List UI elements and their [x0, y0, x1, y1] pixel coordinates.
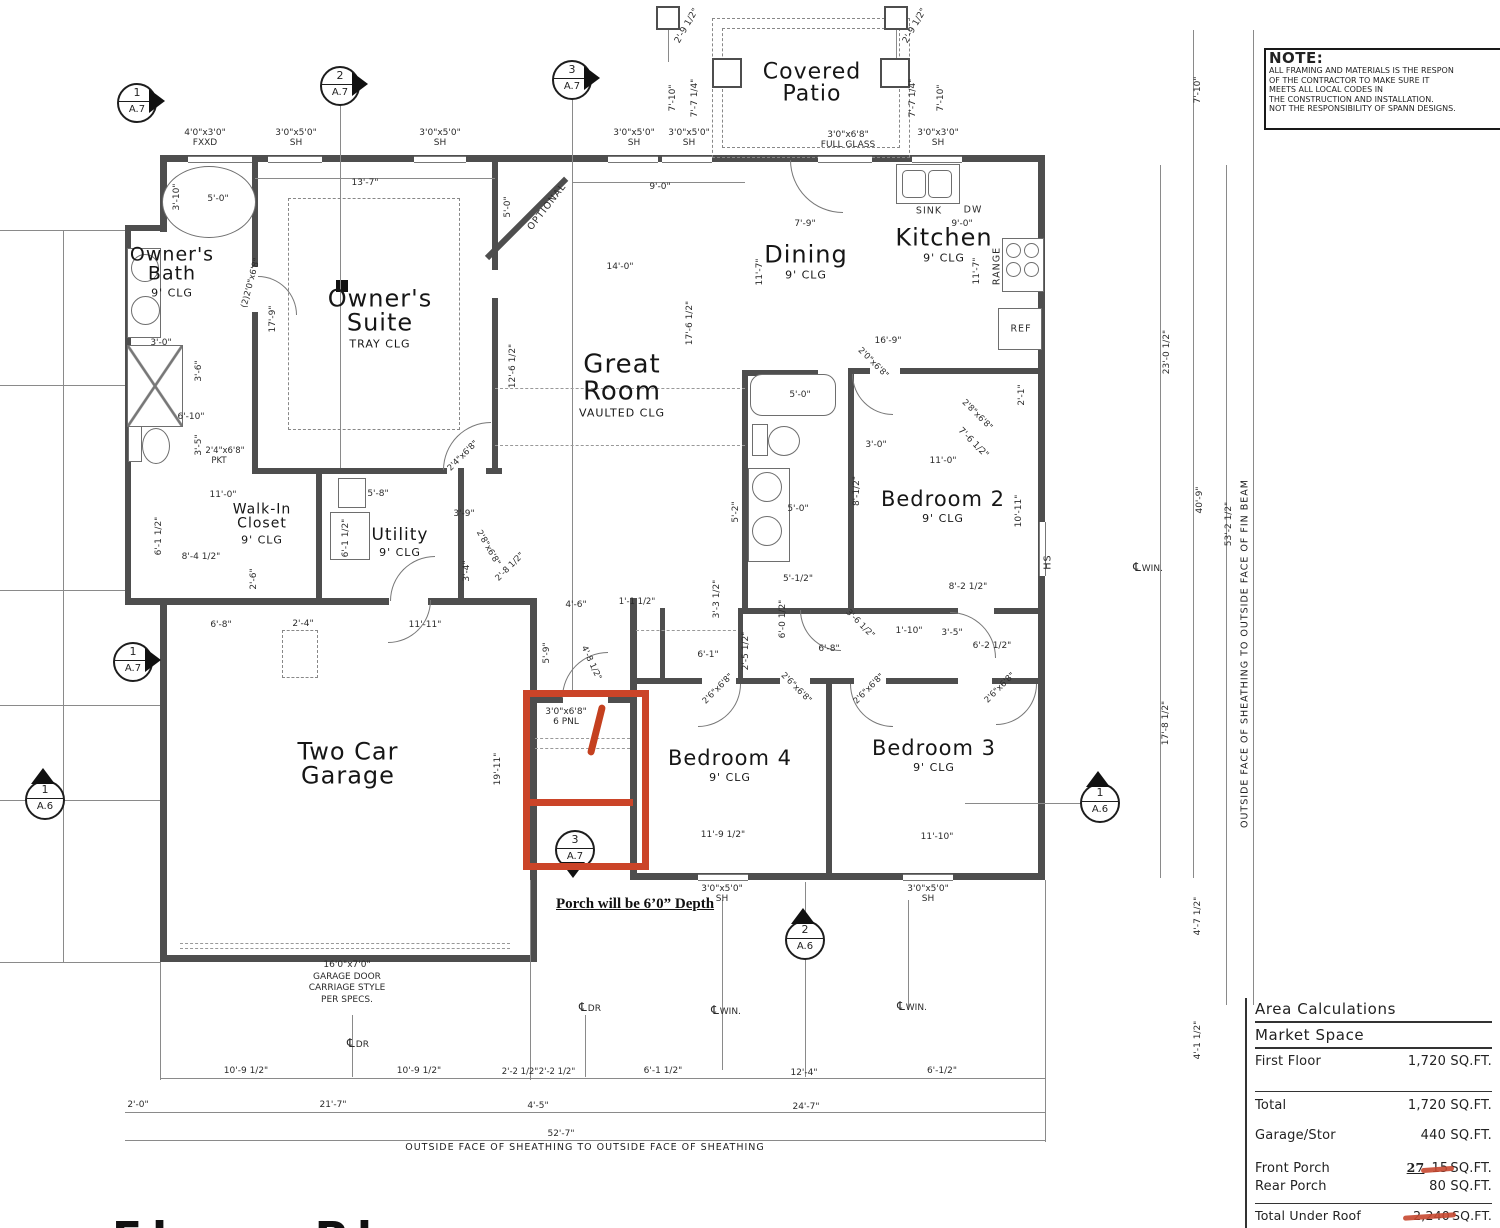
room-name: Dining [764, 243, 847, 267]
dimension-label: 52'-7" [547, 1129, 574, 1139]
table-row-front-porch: Front Porch 27 15 SQ.FT. [1255, 1160, 1492, 1176]
window-label: 3'0"x5'0" SH [275, 129, 316, 149]
row-label: Garage/Stor [1255, 1128, 1336, 1143]
dimension-label: 5'-1/2" [783, 574, 813, 584]
dimension-label: 2'4"x6'8" [205, 446, 244, 456]
extension-line [530, 880, 531, 1080]
struck-value: 15 [1429, 1161, 1450, 1176]
dimension-label: 5'-0" [207, 194, 228, 204]
fixture-label: RANGE [992, 247, 1003, 285]
row-label: Total Under Roof [1255, 1208, 1361, 1223]
extension-line [160, 1078, 1045, 1079]
window-opening [903, 874, 953, 881]
wall-segment [428, 598, 537, 605]
centerline-label: ℄WIN. [711, 1003, 741, 1017]
marker-number: 2 [787, 922, 823, 939]
row-label: Front Porch [1255, 1161, 1330, 1176]
garage-door-label-line: PER SPECS. [280, 995, 414, 1007]
dimension-label: 40'-9" [1195, 486, 1205, 513]
room-label: Dining9' CLG [764, 243, 847, 282]
row-value: 1,720 SQ.FT. [1408, 1054, 1492, 1069]
room-name: Owner's Bath [130, 246, 214, 285]
extension-line [722, 900, 723, 1070]
marker-pointer-icon [791, 908, 815, 924]
note-line: OF THE CONTRACTOR TO MAKE SURE IT [1269, 76, 1500, 86]
ceiling-note: 9' CLG [233, 534, 292, 545]
room-label: Bedroom 39' CLG [872, 738, 996, 774]
dimension-label: 3'-5" [194, 434, 204, 455]
dimension-label: 21'-7" [319, 1100, 346, 1110]
wall-segment [316, 468, 322, 600]
dimension-label: 1'-10" [895, 626, 922, 636]
window-opening [608, 156, 658, 163]
note-line: NOT THE RESPONSIBILITY OF SPANN DESIGNS. [1269, 104, 1500, 114]
sheet-title-partial: Floor Plan [112, 1213, 672, 1228]
garage-door-label-line: GARAGE DOOR [280, 972, 414, 984]
dimension-label: 7'-7 1/4" [690, 79, 700, 118]
dimension-label: 19'-11" [493, 753, 503, 786]
marker-sheet: A.6 [27, 799, 63, 814]
centerline-label: ℄DR [579, 1000, 601, 1014]
row-value: 1,720 SQ.FT. [1408, 1098, 1492, 1113]
marker-number: 1 [27, 782, 63, 799]
shower-stall [127, 345, 183, 427]
extension-line [160, 962, 161, 1080]
patio-footing [884, 6, 908, 30]
centerline-label: ℄WIN. [897, 999, 927, 1013]
row-value: 440 SQ.FT. [1421, 1128, 1492, 1143]
wall-segment [125, 225, 167, 231]
vanity-sink [752, 516, 782, 546]
centerline-icon: ℄ [347, 1036, 355, 1050]
window-label: 3'0"x5'0" SH [419, 129, 460, 149]
room-label: Covered Patio [763, 62, 861, 107]
marker-pointer-icon [145, 648, 161, 672]
kitchen-sink-bowl [902, 170, 926, 198]
note-box: NOTE: ALL FRAMING AND MATERIALS IS THE R… [1264, 48, 1500, 130]
range-burner [1024, 243, 1039, 258]
section-marker: 1A.6 [25, 780, 65, 820]
dashed-line [636, 630, 736, 632]
wall-segment [530, 873, 537, 962]
porch-markup-box [523, 690, 649, 870]
dimension-label: 11'-11" [409, 620, 442, 630]
note-line: ALL FRAMING AND MATERIALS IS THE RESPON [1269, 66, 1500, 76]
struck-value: 2,240 [1411, 1208, 1452, 1223]
dimension-label: 3'-10" [172, 183, 182, 210]
section-marker: 2A.6 [785, 920, 825, 960]
ceiling-note: 9' CLG [881, 514, 1005, 525]
fixture-label: HS [1043, 554, 1054, 569]
fixture-label: DW [964, 205, 983, 216]
extension-line [908, 900, 909, 1010]
room-name: Utility [371, 527, 428, 544]
dimension-label: 2'-6" [249, 568, 259, 589]
section-marker: 3A.7 [552, 60, 592, 100]
room-name: Owner's Suite [328, 286, 432, 335]
area-table-title: Area Calculations [1255, 998, 1492, 1023]
dimension-label: 3'-5" [941, 628, 962, 638]
table-row: Total 1,720 SQ.FT. [1255, 1091, 1492, 1113]
dimension-label: 6'-1 1/2" [341, 519, 351, 558]
dimension-label: 6'-10" [177, 412, 204, 422]
extension-line [668, 26, 669, 62]
dimension-label: 6'-1" [697, 650, 718, 660]
window-opening [662, 156, 712, 163]
dimension-label: 12'-4" [790, 1068, 817, 1078]
door-swing-arc [852, 374, 893, 415]
ceiling-note: 9' CLG [872, 763, 996, 774]
marker-sheet: A.6 [1082, 802, 1118, 817]
wall-segment [886, 678, 958, 684]
dimension-label: 2'8"x6'8" [474, 529, 502, 568]
dimension-label: 9'-0" [649, 182, 670, 192]
outside-sheathing-caption-bottom: OUTSIDE FACE OF SHEATHING TO OUTSIDE FAC… [330, 1142, 840, 1153]
note-title: NOTE: [1269, 51, 1500, 66]
door-swing-arc [790, 160, 843, 213]
extension-line [805, 952, 806, 1077]
dimension-label: 7'-7 1/4" [908, 79, 918, 118]
dimension-label: 12'-6 1/2" [508, 344, 518, 388]
room-name: Covered Patio [763, 62, 861, 107]
dimension-label: 2'-5 1/2" [741, 632, 751, 671]
extension-line [125, 1140, 1045, 1141]
toilet-bowl [768, 426, 800, 456]
dimension-label: 5'-0" [787, 504, 808, 514]
extension-line [1193, 30, 1194, 878]
range-burner [1006, 243, 1021, 258]
marker-pointer-icon [1086, 771, 1110, 787]
extension-line [0, 705, 160, 706]
dashed-line [495, 445, 745, 447]
dimension-label: 10'-9 1/2" [397, 1066, 441, 1076]
porch-markup-line [525, 799, 633, 806]
wall-segment [252, 312, 258, 474]
dimension-label: 3'-0" [150, 338, 171, 348]
dimension-label: 2'-2 1/2" [502, 1067, 539, 1077]
dimension-label: 11'-9 1/2" [701, 830, 745, 840]
dimension-label: 9'-0" [951, 219, 972, 229]
extension-line [1226, 165, 1227, 1005]
range-burner [1024, 262, 1039, 277]
vanity-sink [752, 472, 782, 502]
dimension-label: 53'-2 1/2" [1224, 502, 1234, 546]
dimension-label: 3'-4" [462, 560, 472, 581]
room-name: Bedroom 3 [872, 738, 996, 759]
ceiling-note: 9' CLG [668, 773, 792, 784]
wall-segment [630, 873, 1045, 880]
dimension-label: 11'-7" [755, 258, 765, 285]
dimension-label: 17'-8 1/2" [1161, 701, 1171, 745]
dimension-label: 23'-0 1/2" [1162, 330, 1172, 374]
room-label: Owner's Bath9' CLG [130, 246, 214, 299]
dimension-label: 17'-6 1/2" [685, 301, 695, 345]
row-unit: SQ.FT. [1452, 1208, 1492, 1223]
window-opening [912, 156, 962, 163]
marker-pointer-icon [31, 768, 55, 784]
room-label: Bedroom 49' CLG [668, 748, 792, 784]
ceiling-note: TRAY CLG [328, 338, 432, 349]
window-opening [268, 156, 322, 163]
room-name: Kitchen [895, 226, 992, 250]
dimension-label: 5'-8" [367, 489, 388, 499]
wall-segment [810, 678, 854, 684]
dimension-label: 8'-4 1/2" [182, 552, 221, 562]
dimension-label: 17'-9" [268, 305, 278, 332]
dashed-line [180, 943, 510, 945]
dimension-label: 6'-1 1/2" [644, 1066, 683, 1076]
row-value: 80 SQ.FT. [1429, 1179, 1492, 1194]
dimension-label: 7'-10" [1193, 76, 1203, 103]
patio-post [880, 58, 910, 88]
marker-pointer-icon [584, 66, 600, 90]
dimension-label: 4'-5" [527, 1101, 548, 1111]
dimension-label: 7'-10" [668, 84, 678, 111]
room-name: Walk-In Closet [233, 503, 292, 532]
table-row: First Floor 1,720 SQ.FT. [1255, 1054, 1492, 1069]
dimension-label: 14'-0" [606, 262, 633, 272]
dimension-label: 6'-1 1/2" [154, 517, 164, 556]
ceiling-note: VAULTED CLG [579, 407, 665, 418]
wall-segment [125, 598, 389, 605]
marker-pointer-icon [149, 89, 165, 113]
garage-door-label-line: CARRIAGE STYLE [280, 983, 414, 995]
toilet-bowl [142, 428, 170, 464]
garage-door-label: 16'0"x7'0"GARAGE DOORCARRIAGE STYLEPER S… [280, 960, 414, 1006]
dimension-label: 16'-9" [874, 336, 901, 346]
section-marker: 2A.7 [320, 66, 360, 106]
room-label: Bedroom 29' CLG [881, 489, 1005, 525]
dimension-label: 8'-2 1/2" [949, 582, 988, 592]
dimension-label: 4'-1 1/2" [1193, 1021, 1203, 1060]
room-label: Utility9' CLG [371, 527, 428, 559]
kitchen-sink-bowl [928, 170, 952, 198]
dimension-label: 3'-0" [865, 440, 886, 450]
dimension-label: 7'-10" [936, 84, 946, 111]
toilet-tank [128, 426, 142, 462]
extension-line [0, 800, 160, 801]
section-marker: 1A.6 [1080, 783, 1120, 823]
extension-line [585, 1015, 586, 1077]
extension-line [1045, 880, 1046, 1142]
wall-segment [660, 608, 665, 680]
row-label: Total [1255, 1098, 1286, 1113]
extension-line [1160, 165, 1161, 878]
sheet-title-text: Floor Plan [112, 1213, 463, 1228]
dimension-label: 24'-7" [792, 1102, 819, 1112]
note-line: THE CONSTRUCTION AND INSTALLATION. [1269, 95, 1500, 105]
ceiling-note: 9' CLG [130, 287, 214, 298]
fixture-label: REF [1010, 324, 1031, 335]
dimension-label: 5'-2" [731, 501, 741, 522]
marker-number: 1 [1082, 785, 1118, 802]
room-name: Bedroom 2 [881, 489, 1005, 510]
dimension-label: 4'-6" [565, 600, 586, 610]
garage-door-label-line: 16'0"x7'0" [280, 960, 414, 972]
centerline-icon: ℄ [711, 1003, 719, 1017]
dimension-label: 6'-8" [210, 620, 231, 630]
wall-segment [994, 608, 1045, 614]
ceiling-note: 9' CLG [371, 548, 428, 559]
dimension-label: 3'-9" [453, 509, 474, 519]
dimension-label: 2'-0" [127, 1100, 148, 1110]
dimension-label: 2'-2 1/2" [539, 1067, 576, 1077]
wall-segment [826, 678, 832, 880]
patio-post [712, 58, 742, 88]
section-marker: 1A.7 [117, 83, 157, 123]
table-row: Garage/Stor 440 SQ.FT. [1255, 1128, 1492, 1143]
dimension-label: 5'-9" [542, 642, 552, 663]
window-label: 3'0"x5'0" SH [668, 129, 709, 149]
area-table-subtitle: Market Space [1255, 1023, 1492, 1049]
vanity-sink [131, 296, 160, 325]
section-marker: 1A.7 [113, 642, 153, 682]
wall-segment [255, 468, 447, 474]
dimension-label: 11'-0" [209, 490, 236, 500]
dimension-label: 10'-11" [1014, 495, 1024, 528]
wall-segment [492, 298, 498, 474]
dimension-label: 3'-6" [194, 360, 204, 381]
window-opening [414, 156, 466, 163]
table-row: Rear Porch 80 SQ.FT. [1255, 1179, 1492, 1194]
room-label: Great RoomVAULTED CLG [579, 351, 665, 418]
row-unit: SQ.FT. [1450, 1161, 1492, 1176]
extension-line [125, 1112, 1045, 1113]
dimension-label: 6'-8" [818, 644, 839, 654]
dimension-label: 5'-0" [789, 390, 810, 400]
area-calculations-table: Area Calculations Market Space First Flo… [1245, 998, 1492, 1228]
extension-line [0, 962, 160, 963]
door-swing-arc [390, 556, 435, 601]
dimension-label: 2'-4" [292, 619, 313, 629]
wall-segment [630, 678, 702, 684]
table-row-total-under-roof: Total Under Roof 2,240 SQ.FT. [1255, 1203, 1492, 1228]
wall-segment [160, 598, 167, 962]
outside-fin-beam-caption-right: OUTSIDE FACE OF SHEATHING TO OUTSIDE FAC… [1240, 314, 1251, 994]
dimension-label: 3'-3 1/2" [712, 580, 722, 619]
window-label: 4'0"x3'0" FXXD [184, 129, 225, 149]
range-burner [1006, 262, 1021, 277]
row-label: First Floor [1255, 1054, 1321, 1069]
dimension-label: 11'-0" [929, 456, 956, 466]
room-label: Two Car Garage [298, 740, 399, 789]
dimension-label: 11'-7" [972, 257, 982, 284]
window-opening [698, 874, 748, 881]
room-label: Owner's SuiteTRAY CLG [328, 286, 432, 349]
wall-segment [900, 368, 1045, 374]
dimension-label: 13'-7" [351, 178, 378, 188]
marker-sheet: A.6 [787, 939, 823, 954]
dimension-label: 7'-9" [794, 219, 815, 229]
row-label: Rear Porch [1255, 1179, 1327, 1194]
centerline-label: ℄DR [347, 1036, 369, 1050]
dimension-label: 6'-0 1/2" [778, 600, 788, 639]
dimension-label: 1'-1 1/2" [619, 597, 656, 607]
room-name: Two Car Garage [298, 740, 399, 789]
note-line: MEETS ALL LOCAL CODES IN [1269, 85, 1500, 95]
centerline-icon: ℄ [579, 1000, 587, 1014]
extension-line [63, 230, 64, 962]
dimension-label: 2'6"x6'8" [779, 671, 814, 706]
window-label: 3'0"x5'0" SH [907, 885, 948, 905]
porch-depth-note: Porch will be 6’0” Depth [556, 896, 714, 913]
dimension-label: 10'-9 1/2" [224, 1066, 268, 1076]
dimension-label: 2'-1" [1017, 384, 1027, 405]
dimension-label: 4'-7 1/2" [1193, 897, 1203, 936]
utility-appliance [338, 478, 366, 508]
centerline-icon: ℄ [1133, 560, 1141, 574]
extension-line [1253, 30, 1254, 1005]
window-label: 3'0"x5'0" SH [613, 129, 654, 149]
room-label: Walk-In Closet9' CLG [233, 503, 292, 546]
centerline-icon: ℄ [897, 999, 905, 1013]
dimension-label: 6'-2 1/2" [973, 641, 1012, 651]
floor-plan-sheet: Owner's Bath9' CLGOwner's SuiteTRAY CLGG… [0, 0, 1500, 1228]
room-name: Bedroom 4 [668, 748, 792, 769]
toilet-tank [752, 424, 768, 456]
window-label: 3'0"x6'8" FULL GLASS [821, 131, 875, 151]
dimension-label: 6'-1/2" [927, 1066, 957, 1076]
room-name: Great Room [579, 351, 665, 404]
dashed-outline [282, 630, 318, 678]
patio-footing [656, 6, 680, 30]
dimension-label: 11'-10" [921, 832, 954, 842]
note-body: ALL FRAMING AND MATERIALS IS THE RESPONO… [1269, 66, 1500, 114]
dimension-label: 8'-1/2" [852, 476, 862, 506]
window-opening [188, 156, 252, 163]
fixture-label: SINK [916, 206, 942, 217]
dimension-label: 5'-0" [503, 196, 513, 217]
centerline-label: ℄WIN. [1133, 560, 1163, 574]
ceiling-note: 9' CLG [764, 270, 847, 281]
marker-pointer-icon [352, 72, 368, 96]
dashed-line [180, 948, 510, 950]
dimension-label: PKT [211, 456, 226, 466]
window-label: 3'0"x3'0" SH [917, 129, 958, 149]
